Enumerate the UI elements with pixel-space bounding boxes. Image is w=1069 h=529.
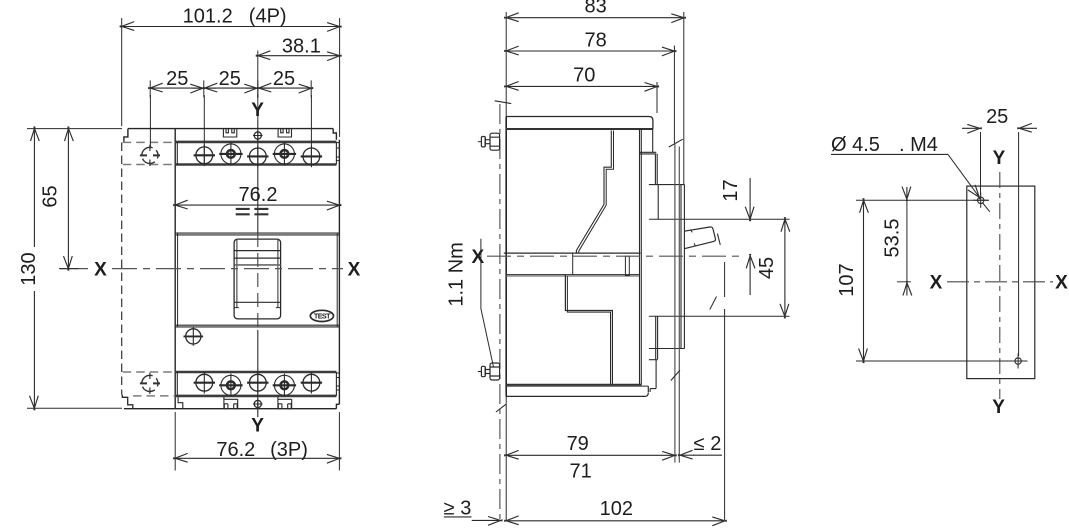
svg-text:X: X	[471, 247, 484, 268]
svg-text:TEST: TEST	[314, 312, 331, 321]
svg-text:65: 65	[40, 185, 62, 207]
svg-text:Y: Y	[992, 397, 1005, 418]
svg-text:101.2: 101.2	[183, 6, 233, 28]
svg-text:71: 71	[569, 461, 591, 483]
svg-text:X: X	[94, 260, 107, 281]
svg-text:Y: Y	[993, 148, 1006, 169]
svg-text:53.5: 53.5	[882, 219, 904, 258]
svg-text:102: 102	[600, 498, 633, 520]
svg-text:79: 79	[567, 433, 589, 455]
svg-text:25: 25	[166, 68, 188, 90]
svg-text:17: 17	[720, 179, 742, 201]
svg-text:130: 130	[18, 252, 40, 285]
svg-text:76.2: 76.2	[239, 184, 278, 206]
svg-text:25: 25	[273, 68, 295, 90]
svg-text:45: 45	[756, 257, 778, 279]
svg-text:78: 78	[584, 29, 606, 51]
svg-text:Y: Y	[251, 416, 264, 437]
svg-text:25: 25	[219, 68, 241, 90]
svg-text:X: X	[1055, 273, 1068, 294]
svg-text:(4P): (4P)	[249, 6, 287, 28]
svg-text:≤ 2: ≤ 2	[694, 433, 722, 455]
svg-text:≥ 3: ≥ 3	[444, 498, 472, 520]
svg-text:70: 70	[573, 65, 595, 87]
svg-text:X: X	[348, 260, 361, 281]
svg-text:76.2: 76.2	[216, 439, 255, 461]
svg-text:25: 25	[986, 106, 1008, 128]
svg-text:. M4: . M4	[899, 134, 938, 156]
svg-text:107: 107	[836, 263, 858, 296]
svg-text:83: 83	[584, 0, 606, 18]
svg-text:Ø 4.5: Ø 4.5	[831, 134, 880, 156]
svg-text:(3P): (3P)	[270, 439, 308, 461]
svg-text:1.1 Nm: 1.1 Nm	[446, 242, 468, 306]
svg-text:38.1: 38.1	[282, 35, 321, 57]
svg-text:X: X	[930, 273, 943, 294]
